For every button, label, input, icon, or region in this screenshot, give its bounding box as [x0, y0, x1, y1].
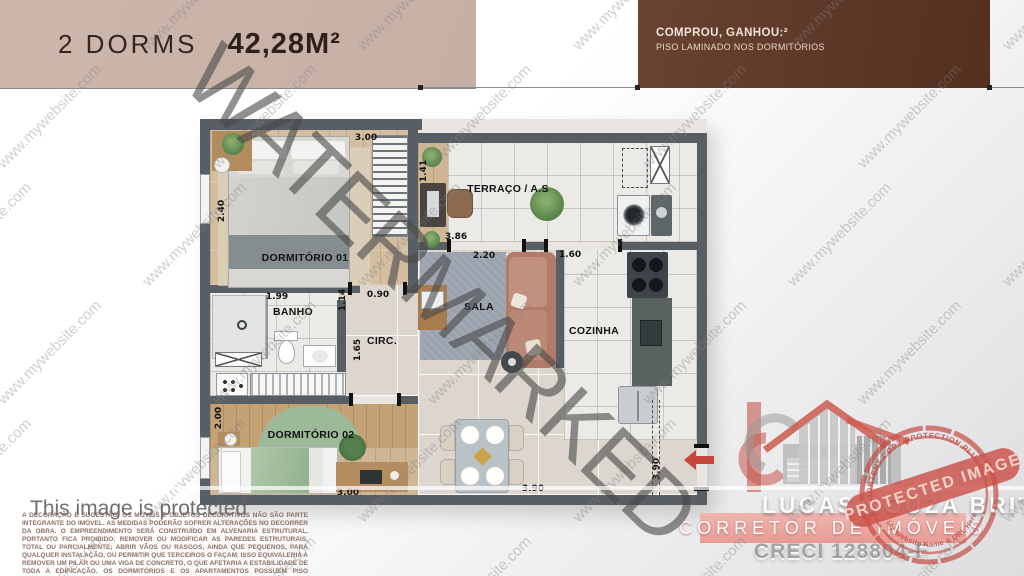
room-label-circ: CIRC.: [367, 335, 397, 347]
dim-circ-width: 0.90: [367, 290, 389, 300]
plate: [485, 466, 505, 486]
disclaimer-text: A DECORAÇÃO É SUGESTÃO. OS MÓVEIS E OBJE…: [22, 512, 308, 576]
dining-chair: [440, 425, 455, 451]
dim-banho-door: 1.14: [338, 289, 348, 311]
washer-drum: [623, 204, 645, 226]
shower-drain: [237, 320, 247, 330]
opening-cap: [618, 239, 622, 252]
wall-dorm2-top: [210, 396, 352, 404]
kitchen-counter: [632, 298, 672, 386]
desk-lamp: [390, 471, 399, 480]
wardrobe: [250, 373, 346, 396]
microwave: [421, 291, 444, 309]
opening-cap: [544, 239, 548, 252]
wall-circ-top: [406, 285, 418, 293]
pillow: [291, 141, 345, 159]
plant-dorm1: [222, 133, 244, 155]
divider-dot: [418, 85, 423, 90]
room-label-banho: BANHO: [273, 306, 313, 318]
plant-nook-bottom: [423, 231, 440, 248]
dim-circ-depth: 1.65: [353, 339, 363, 361]
watermark-tile-text: www.mywebsite.com: [0, 297, 105, 407]
stove: [627, 252, 668, 298]
dim-entrance-depth: 3.90: [652, 458, 662, 480]
lamp-dorm1: [214, 157, 230, 173]
protected-text: This image is protected: [30, 497, 247, 521]
dining-table: [455, 419, 509, 493]
monitor: [427, 191, 439, 217]
watermark-tile-text: www.mywebsite.com: [854, 297, 964, 407]
wall-top-terraco: [418, 133, 707, 143]
dim-banho-width: 1.99: [266, 292, 288, 302]
shower-area: [212, 295, 266, 359]
tanque-basin: [656, 207, 667, 218]
watermark-tile-text: www.mywebsite.com: [0, 179, 35, 289]
bathroom-sink: [303, 345, 336, 367]
centerpiece: [473, 447, 491, 465]
window-dorm2: [200, 437, 210, 479]
opening-cap: [348, 282, 352, 295]
dim-dorm1-width: 3.00: [355, 133, 377, 143]
plate: [485, 425, 505, 445]
shower-glass: [266, 295, 268, 359]
dim-terraco-width: 3.86: [445, 232, 467, 242]
shaft-box: [650, 146, 670, 184]
watermark-tile-text: www.mywebsite.com: [999, 0, 1024, 54]
laptop: [360, 470, 382, 484]
room-label-terraco: TERRAÇO / A.S: [467, 183, 549, 195]
room-label-dorm2: DORMITÓRIO 02: [268, 429, 355, 441]
dining-chair: [440, 459, 455, 485]
divider-dot: [987, 85, 992, 90]
opening-cap: [349, 393, 353, 406]
wall-top-dorm1: [200, 119, 422, 130]
watermark-tile-text: www.mywebsite.com: [424, 533, 534, 576]
toilet-bowl: [278, 340, 295, 364]
wall-right-upper: [697, 133, 707, 447]
dining-chair: [509, 425, 524, 451]
throw-pillow: [525, 339, 543, 357]
sink-basin: [312, 350, 328, 363]
floor-plan: DORMITÓRIO 01 TERRAÇO / A.S BANHO CIRC. …: [200, 119, 707, 505]
unit-type-label: 2 DORMS: [58, 29, 197, 60]
entrance-arrow-icon: [684, 450, 714, 470]
dim-nook-width: 1.41: [419, 160, 429, 182]
wall-dorm1-right: [408, 130, 418, 293]
wall-cozinha-left: [556, 250, 564, 368]
page: 2 DORMS 42,28M² COMPROU, GANHOU:² PISO L…: [0, 0, 1024, 576]
opening-cap: [694, 444, 709, 448]
shaft-box-banho: [215, 352, 262, 367]
lamp-dorm2: [224, 433, 237, 446]
plate: [460, 466, 480, 486]
entrance-clearance-dashed: [652, 400, 660, 495]
pillow: [293, 161, 339, 174]
dim-cozinha-opening: 1.60: [559, 250, 581, 260]
washing-machine: [617, 195, 650, 236]
throw-pillow: [510, 292, 528, 310]
circ-cabinet: [418, 285, 447, 330]
room-label-dorm1: DORMITÓRIO 01: [262, 252, 349, 264]
promo-title: COMPROU, GANHOU:²: [656, 27, 990, 39]
dining-chair: [509, 459, 524, 485]
fridge-handle: [637, 391, 639, 421]
desk-nook: [420, 183, 446, 227]
opening-cap: [403, 282, 407, 295]
window-dorm1: [200, 174, 210, 224]
dashed-cabinet-outline: [622, 148, 648, 188]
wall-dorm2-top-2: [400, 396, 418, 404]
side-table-decor: [508, 358, 516, 366]
window-louver-panel: [372, 135, 408, 237]
promo-subtitle: PISO LAMINADO NOS DORMITÓRIOS: [656, 42, 990, 52]
dim-dorm1-depth: 2.40: [217, 200, 227, 222]
promo-box: COMPROU, GANHOU:² PISO LAMINADO NOS DORM…: [638, 0, 990, 88]
opening-cap: [522, 239, 526, 252]
wall-bottom: [200, 495, 707, 505]
opening-cap: [397, 393, 401, 406]
room-label-sala: SALA: [464, 301, 494, 313]
tanque: [651, 195, 672, 236]
dim-sala-opening: 2.20: [473, 251, 495, 261]
plate: [460, 425, 480, 445]
bed-foot: [229, 269, 349, 287]
side-table: [501, 351, 523, 373]
room-label-cozinha: COZINHA: [569, 325, 619, 337]
wall-sala-terraco-3: [620, 242, 707, 250]
unit-area-label: 42,28M²: [227, 28, 340, 61]
watermark-tile-text: www.mywebsite.com: [784, 179, 894, 289]
header-bar: 2 DORMS 42,28M²: [0, 0, 476, 89]
dim-dorm2-depth: 2.00: [214, 407, 224, 429]
kitchen-sink: [640, 320, 662, 346]
wall-sala-terraco-2: [525, 242, 545, 250]
watermark-tile-text: www.mywebsite.com: [999, 179, 1024, 289]
shoe-cabinet: [216, 373, 248, 396]
divider-dot: [635, 85, 640, 90]
